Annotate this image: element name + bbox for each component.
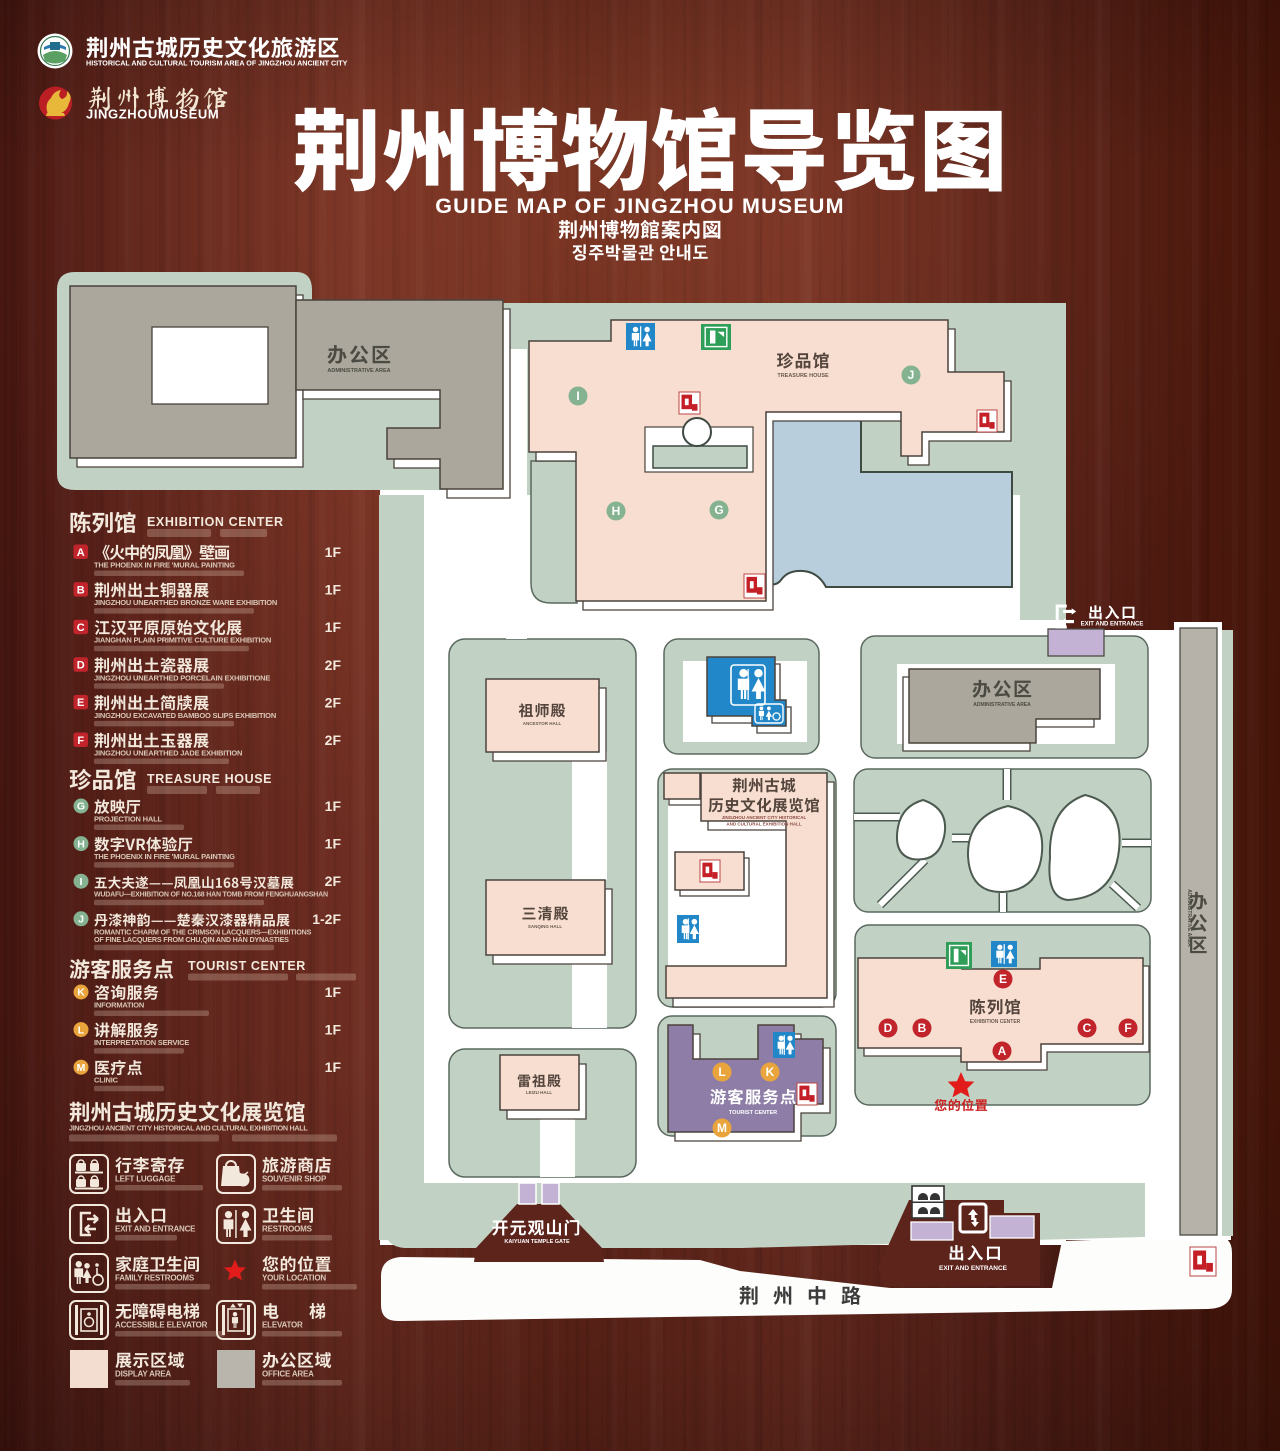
svg-text:ANCESTOR HALL: ANCESTOR HALL bbox=[523, 721, 562, 726]
svg-text:SANQING HALL: SANQING HALL bbox=[528, 924, 563, 929]
svg-text:INTERPRETATION SERVICE: INTERPRETATION SERVICE bbox=[94, 1038, 189, 1047]
svg-text:JINGZHOU ANCIENT CITY HISTORIC: JINGZHOU ANCIENT CITY HISTORICAL AND CUL… bbox=[69, 1124, 308, 1133]
svg-text:K: K bbox=[77, 987, 85, 999]
svg-text:1F: 1F bbox=[325, 582, 342, 598]
svg-text:CLINIC: CLINIC bbox=[94, 1076, 119, 1085]
svg-text:1F: 1F bbox=[325, 619, 342, 635]
svg-text:THE PHOENIX IN FIRE 'MURAL PAI: THE PHOENIX IN FIRE 'MURAL PAINTING bbox=[94, 852, 235, 861]
svg-text:1-2F: 1-2F bbox=[312, 911, 341, 927]
svg-text:PROJECTION HALL: PROJECTION HALL bbox=[94, 815, 162, 824]
svg-text:2F: 2F bbox=[325, 657, 342, 673]
svg-text:OFFICE AREA: OFFICE AREA bbox=[262, 1370, 314, 1379]
svg-text:SOUVENIR SHOP: SOUVENIR SHOP bbox=[262, 1175, 327, 1184]
svg-text:K: K bbox=[766, 1065, 775, 1079]
svg-text:2F: 2F bbox=[325, 694, 342, 710]
svg-text:LEIZU HALL: LEIZU HALL bbox=[526, 1090, 552, 1095]
svg-text:OF FINE LACQUERS FROM CHU,QIN: OF FINE LACQUERS FROM CHU,QIN AND HAN DY… bbox=[94, 935, 289, 944]
svg-text:B: B bbox=[918, 1021, 927, 1035]
svg-text:EXIT AND ENTRANCE: EXIT AND ENTRANCE bbox=[115, 1225, 196, 1234]
svg-text:A: A bbox=[998, 1044, 1007, 1058]
svg-text:D: D bbox=[884, 1021, 893, 1035]
svg-text:J: J bbox=[78, 914, 84, 926]
svg-text:DISPLAY AREA: DISPLAY AREA bbox=[115, 1370, 171, 1379]
svg-text:ACCESSIBLE ELEVATOR: ACCESSIBLE ELEVATOR bbox=[115, 1321, 208, 1330]
svg-text:LEFT LUGGAGE: LEFT LUGGAGE bbox=[115, 1175, 176, 1184]
svg-text:H: H bbox=[612, 504, 621, 518]
svg-text:FAMILY RESTROOMS: FAMILY RESTROOMS bbox=[115, 1274, 195, 1283]
svg-text:E: E bbox=[999, 972, 1007, 986]
svg-text:JINGZHOU ANCIENT CITY HISTORIC: JINGZHOU ANCIENT CITY HISTORICAL bbox=[722, 815, 807, 820]
svg-text:JINGZHOU EXCAVATED BAMBOO SLIP: JINGZHOU EXCAVATED BAMBOO SLIPS EXHIBITI… bbox=[94, 711, 276, 720]
svg-text:1F: 1F bbox=[325, 798, 342, 814]
svg-text:YOUR LOCATION: YOUR LOCATION bbox=[262, 1274, 326, 1283]
svg-text:1F: 1F bbox=[325, 544, 342, 560]
svg-text:2F: 2F bbox=[325, 873, 342, 889]
svg-text:E: E bbox=[77, 697, 84, 709]
svg-text:1F: 1F bbox=[325, 836, 342, 852]
svg-text:EXIT AND ENTRANCE: EXIT AND ENTRANCE bbox=[939, 1265, 1008, 1272]
svg-text:JINGZHOU UNEARTHED PORCELAIN E: JINGZHOU UNEARTHED PORCELAIN EXHIBITIONE bbox=[94, 673, 270, 682]
svg-text:1F: 1F bbox=[325, 1059, 342, 1075]
svg-text:C: C bbox=[1083, 1021, 1092, 1035]
svg-text:KAIYUAN TEMPLE GATE: KAIYUAN TEMPLE GATE bbox=[504, 1239, 570, 1245]
svg-text:J: J bbox=[908, 368, 915, 382]
svg-text:M: M bbox=[717, 1121, 727, 1135]
svg-text:B: B bbox=[77, 584, 85, 596]
svg-text:EXHIBITION CENTER: EXHIBITION CENTER bbox=[970, 1019, 1021, 1025]
svg-text:JIANGHAN PLAIN PRIMITIVE CULTU: JIANGHAN PLAIN PRIMITIVE CULTURE EXHIBIT… bbox=[94, 636, 271, 645]
svg-text:D: D bbox=[77, 660, 85, 672]
svg-text:F: F bbox=[77, 735, 84, 747]
svg-text:TREASURE HOUSE: TREASURE HOUSE bbox=[777, 373, 829, 379]
svg-text:1F: 1F bbox=[325, 984, 342, 1000]
svg-text:EXHIBITION CENTER: EXHIBITION CENTER bbox=[147, 515, 284, 529]
svg-text:GUIDE MAP OF JINGZHOU MUSEUM: GUIDE MAP OF JINGZHOU MUSEUM bbox=[435, 194, 844, 218]
svg-text:ADMINISTRATIVE AREA: ADMINISTRATIVE AREA bbox=[327, 368, 390, 374]
svg-text:RESTROOMS: RESTROOMS bbox=[262, 1225, 313, 1234]
svg-text:ADMINISTRATIVE AREA: ADMINISTRATIVE AREA bbox=[1186, 889, 1192, 947]
svg-text:HISTORICAL AND CULTURAL TOURIS: HISTORICAL AND CULTURAL TOURISM AREA OF … bbox=[86, 59, 348, 68]
svg-text:ELEVATOR: ELEVATOR bbox=[262, 1321, 303, 1330]
svg-text:G: G bbox=[77, 801, 85, 813]
svg-text:TREASURE HOUSE: TREASURE HOUSE bbox=[147, 772, 272, 786]
svg-text:F: F bbox=[1124, 1021, 1131, 1035]
svg-text:2F: 2F bbox=[325, 732, 342, 748]
svg-text:I: I bbox=[80, 876, 83, 888]
svg-text:L: L bbox=[718, 1065, 725, 1079]
svg-text:A: A bbox=[77, 547, 85, 559]
svg-text:WUDAFU—EXHIBITION OF NO.168 HA: WUDAFU—EXHIBITION OF NO.168 HAN TOMB FRO… bbox=[94, 892, 328, 899]
svg-text:JINGZHOUMUSEUM: JINGZHOUMUSEUM bbox=[86, 107, 219, 122]
svg-text:I: I bbox=[576, 389, 579, 403]
svg-text:1F: 1F bbox=[325, 1022, 342, 1038]
svg-text:JINGZHOU UNEARTHED BRONZE WARE: JINGZHOU UNEARTHED BRONZE WARE EXHIBITIO… bbox=[94, 598, 277, 607]
svg-text:C: C bbox=[77, 622, 85, 634]
svg-text:INFORMATION: INFORMATION bbox=[94, 1001, 144, 1010]
svg-text:AND CULTURAL EXHIBITION HALL: AND CULTURAL EXHIBITION HALL bbox=[726, 822, 802, 827]
svg-text:EXIT AND ENTRANCE: EXIT AND ENTRANCE bbox=[1081, 622, 1144, 628]
svg-text:H: H bbox=[77, 838, 85, 850]
svg-text:G: G bbox=[714, 503, 723, 517]
svg-text:ADMINISTRATIVE AREA: ADMINISTRATIVE AREA bbox=[973, 702, 1031, 708]
svg-text:M: M bbox=[77, 1062, 86, 1074]
svg-text:JINGZHOU UNEARTHED JADE EXHIBI: JINGZHOU UNEARTHED JADE EXHIBITION bbox=[94, 749, 242, 758]
svg-text:L: L bbox=[78, 1024, 85, 1036]
svg-text:TOURIST CENTER: TOURIST CENTER bbox=[188, 959, 306, 973]
svg-text:THE PHOENIX IN FIRE 'MURAL PAI: THE PHOENIX IN FIRE 'MURAL PAINTING bbox=[94, 561, 235, 570]
svg-text:TOURIST CENTER: TOURIST CENTER bbox=[729, 1110, 777, 1116]
